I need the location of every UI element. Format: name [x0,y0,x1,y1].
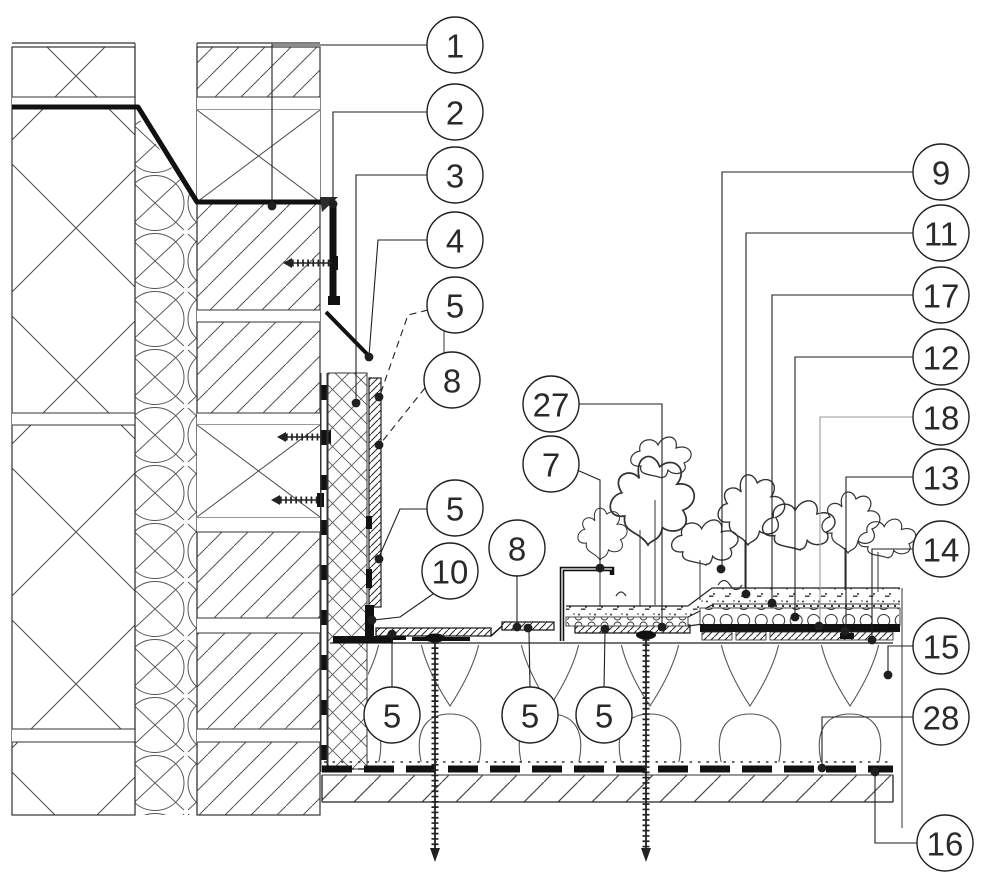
callout-dot [742,590,751,599]
callout-dot [815,622,824,631]
concrete-slab [322,775,893,802]
callout-leader [333,112,427,203]
callout-dot [868,636,877,645]
callout-leader [795,357,913,615]
construction-detail-drawing: 12345851082775559111712181314152816 [0,0,1000,886]
callout-number: 5 [595,698,613,735]
callout-number: 11 [924,216,958,253]
callout-leader [369,240,427,356]
flashing-foot [328,296,340,305]
callout-dot [513,623,522,632]
wall-cavity-insulation [135,112,197,815]
callout-leader [579,404,662,624]
substrate-thin [566,606,688,617]
callout-dot [818,764,827,773]
callout-dot [524,624,533,633]
callout-leader [381,388,425,443]
callout-number: 3 [446,158,464,195]
callout-dot [717,565,726,574]
callout-number: 10 [432,554,469,591]
callout-leader [746,233,913,592]
drawing-canvas: 12345851082775559111712181314152816 [0,0,1000,886]
callout-number: 18 [923,400,960,437]
callout-27: 27 [523,376,666,631]
callout-dot [375,441,384,450]
callout-dot [871,768,880,777]
callout-leader [846,477,913,629]
drainage-thin [566,617,688,626]
callout-number: 5 [521,698,539,735]
wall-vapour-layer [321,373,327,772]
membrane-under-green [702,632,893,640]
callout-number: 12 [923,340,960,377]
callout-10: 10 [368,543,478,624]
flashing-drip-edge [326,312,369,356]
callout-leader [380,310,428,395]
vegetation [578,437,916,607]
drainage-layer [700,608,900,625]
callout-number: 17 [923,278,960,315]
callout-leader [356,175,427,402]
callout-dot [388,630,397,639]
callout-dot [768,599,777,608]
callout-dot [268,202,277,211]
callout-dot [375,393,384,402]
protection-board [366,378,381,607]
callout-dot [365,353,374,362]
callout-dot [375,555,384,564]
callout-number: 27 [533,387,570,424]
callout-number: 5 [446,288,464,325]
callout-dot [658,623,667,632]
callout-number: 1 [446,28,464,65]
callout-leader [374,594,433,620]
callout-number: 13 [923,460,960,497]
callout-dot [791,613,800,622]
callout-dot [329,200,338,209]
callout-dot [884,671,893,680]
callout-number: 5 [383,698,401,735]
callout-leader [379,509,429,557]
callout-number: 2 [446,95,464,132]
callout-number: 8 [443,363,461,400]
callout-dot [601,625,610,634]
callout-number: 7 [542,447,560,484]
callout-number: 5 [446,491,464,528]
callout-dot [596,564,605,573]
callout-number: 4 [446,223,464,260]
callout-dot [352,399,361,408]
wall-section [12,43,320,815]
callout-number: 14 [923,532,960,569]
callout-number: 15 [923,629,960,666]
masonry-wall [197,43,320,815]
upstand-insulation [328,373,367,769]
callout-number: 8 [508,531,526,568]
callout-8: 8 [489,520,545,631]
callout-dot [841,627,850,636]
callout-number: 28 [923,700,960,737]
vapour-barrier [322,762,893,775]
root-barrier [700,624,900,632]
callout-number: 9 [932,155,950,192]
callout-dot [368,616,377,625]
callout-number: 16 [927,826,964,863]
